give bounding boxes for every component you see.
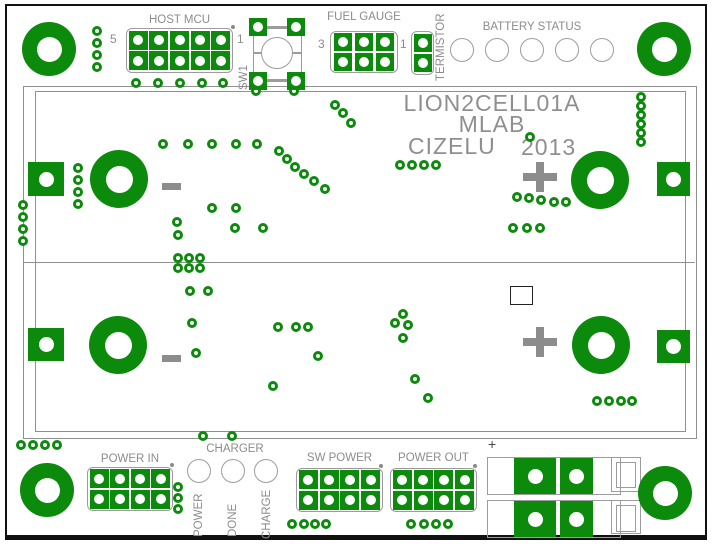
via bbox=[195, 263, 205, 273]
via bbox=[173, 482, 183, 492]
via bbox=[549, 197, 559, 207]
via bbox=[508, 223, 518, 233]
via bbox=[291, 322, 301, 332]
mounting-hole bbox=[638, 466, 692, 520]
sw1-pad-drill bbox=[291, 76, 301, 86]
header-pin-drill bbox=[156, 494, 166, 504]
battery-contact-drill bbox=[106, 166, 133, 193]
via bbox=[18, 236, 28, 246]
via bbox=[185, 286, 195, 296]
via bbox=[390, 318, 400, 328]
square-pad bbox=[514, 501, 556, 537]
header-pin-drill bbox=[216, 56, 226, 66]
via bbox=[18, 200, 28, 210]
header-pin-pad bbox=[414, 491, 433, 510]
via bbox=[604, 396, 614, 406]
via bbox=[407, 160, 417, 170]
mounting-hole bbox=[637, 22, 691, 76]
mounting-hole-drill bbox=[35, 478, 60, 503]
via bbox=[207, 203, 217, 213]
header-pin-pad bbox=[340, 470, 359, 489]
header-pin-pad bbox=[455, 491, 474, 510]
header-pin-pad bbox=[361, 491, 380, 510]
power-out-header bbox=[390, 468, 477, 512]
square-pad bbox=[560, 501, 593, 537]
via bbox=[431, 160, 441, 170]
via bbox=[92, 62, 102, 72]
via bbox=[230, 223, 240, 233]
header-pin-pad bbox=[170, 51, 189, 70]
battery-contact-drill bbox=[588, 332, 615, 359]
plus-mark bbox=[536, 162, 544, 192]
plus-mark bbox=[536, 327, 544, 357]
power-in-label: POWER IN bbox=[87, 453, 173, 465]
mounting-hole bbox=[20, 463, 74, 517]
header-pin-pad bbox=[334, 33, 352, 51]
header-pin-pad bbox=[129, 51, 148, 70]
power-in-pin1-dot bbox=[170, 463, 174, 467]
header-pin-drill bbox=[324, 495, 334, 505]
header-pin-pad bbox=[434, 491, 453, 510]
via bbox=[616, 396, 626, 406]
header-pin-drill bbox=[338, 57, 348, 67]
via bbox=[252, 139, 262, 149]
via bbox=[443, 519, 453, 529]
battery-contact-drill bbox=[587, 167, 614, 194]
header-pin-pad bbox=[211, 31, 230, 50]
header-pin-drill bbox=[366, 495, 376, 505]
via bbox=[40, 440, 50, 450]
header-pin-pad bbox=[361, 470, 380, 489]
square-pad-drill bbox=[39, 172, 54, 187]
charger-label: CHARGER bbox=[192, 443, 278, 455]
via bbox=[227, 431, 237, 441]
termistor-header bbox=[411, 31, 434, 75]
via bbox=[131, 78, 141, 88]
via bbox=[524, 193, 534, 203]
via bbox=[290, 162, 300, 172]
via bbox=[173, 230, 183, 240]
via bbox=[525, 132, 535, 142]
header-pin-pad bbox=[131, 490, 150, 509]
header-pin-pad bbox=[90, 490, 109, 509]
header-pin-drill bbox=[380, 57, 390, 67]
host-mcu-header bbox=[126, 28, 233, 73]
header-pin-drill bbox=[418, 58, 428, 68]
via bbox=[522, 223, 532, 233]
header-pin-drill bbox=[154, 56, 164, 66]
header-pin-drill bbox=[418, 495, 428, 505]
via bbox=[419, 519, 429, 529]
header-pin-drill bbox=[439, 495, 449, 505]
fuel-gauge-header bbox=[330, 31, 398, 73]
via bbox=[183, 139, 193, 149]
header-pin-pad bbox=[376, 53, 394, 71]
header-pin-drill bbox=[175, 56, 185, 66]
via bbox=[73, 199, 83, 209]
header-pin-pad bbox=[110, 490, 129, 509]
via bbox=[184, 263, 194, 273]
header-pin-drill bbox=[216, 35, 226, 45]
via bbox=[184, 253, 194, 263]
square-pad bbox=[514, 458, 556, 494]
via bbox=[303, 322, 313, 332]
battery-connector-plus-label: + bbox=[488, 436, 496, 452]
header-pin-pad bbox=[320, 491, 339, 510]
via bbox=[287, 519, 297, 529]
square-cutout bbox=[510, 286, 533, 305]
header-pin-pad bbox=[149, 51, 168, 70]
square-pad-drill bbox=[569, 469, 584, 484]
square-pad bbox=[657, 330, 690, 363]
fuel-gauge-pin3-label: 3 bbox=[318, 37, 325, 51]
fuel-gauge-pin1-label: 1 bbox=[400, 37, 407, 51]
sw1-pad bbox=[249, 72, 267, 90]
battery-status-label: BATTERY STATUS bbox=[482, 21, 582, 33]
sw1-pad-drill bbox=[253, 22, 263, 32]
charger-led-label: DONE bbox=[227, 485, 239, 537]
via bbox=[309, 176, 319, 186]
header-pin-pad bbox=[414, 34, 432, 52]
via bbox=[512, 192, 522, 202]
header-pin-drill bbox=[133, 35, 143, 45]
sw-power-label: SW POWER bbox=[296, 452, 383, 464]
sw1-pad-drill bbox=[253, 76, 263, 86]
power-in-header bbox=[87, 467, 173, 511]
header-pin-pad bbox=[414, 54, 432, 72]
via bbox=[173, 253, 183, 263]
via bbox=[273, 322, 283, 332]
via bbox=[198, 431, 208, 441]
header-pin-drill bbox=[345, 475, 355, 485]
via bbox=[172, 217, 182, 227]
via bbox=[423, 393, 433, 403]
header-pin-pad bbox=[393, 470, 412, 489]
via bbox=[197, 78, 207, 88]
header-pin-drill bbox=[338, 37, 348, 47]
square-pad bbox=[28, 162, 64, 196]
via bbox=[299, 519, 309, 529]
battery-status-led bbox=[485, 38, 509, 62]
header-pin-pad bbox=[434, 470, 453, 489]
terminal-block-row1-clamp-opening bbox=[616, 462, 636, 488]
sw1-pad bbox=[287, 72, 305, 90]
header-pin-drill bbox=[397, 475, 407, 485]
header-pin-drill bbox=[135, 474, 145, 484]
power-out-pin1-dot bbox=[473, 464, 477, 468]
minus-mark bbox=[162, 183, 181, 190]
host-mcu-pin5-label: 5 bbox=[110, 32, 117, 46]
header-pin-pad bbox=[299, 491, 318, 510]
square-pad-drill bbox=[569, 512, 584, 527]
via bbox=[191, 348, 201, 358]
via bbox=[173, 504, 183, 514]
via bbox=[187, 318, 197, 328]
via bbox=[321, 519, 331, 529]
via bbox=[175, 78, 185, 88]
header-pin-drill bbox=[175, 35, 185, 45]
header-pin-pad bbox=[376, 33, 394, 51]
header-pin-pad bbox=[211, 51, 230, 70]
header-pin-drill bbox=[115, 474, 125, 484]
via bbox=[207, 139, 217, 149]
square-pad-drill bbox=[666, 172, 681, 187]
battery-contact-ring bbox=[572, 316, 630, 374]
header-pin-drill bbox=[345, 495, 355, 505]
via bbox=[403, 320, 413, 330]
sw1-pad bbox=[249, 18, 267, 36]
via bbox=[398, 333, 408, 343]
header-pin-pad bbox=[110, 469, 129, 488]
minus-mark bbox=[162, 355, 181, 362]
via bbox=[592, 396, 602, 406]
mounting-hole-drill bbox=[653, 481, 678, 506]
header-pin-pad bbox=[320, 470, 339, 489]
header-pin-pad bbox=[191, 31, 210, 50]
via bbox=[153, 78, 163, 88]
header-pin-pad bbox=[299, 470, 318, 489]
via bbox=[338, 108, 348, 118]
sw1-pad-drill bbox=[291, 22, 301, 32]
square-pad-drill bbox=[528, 512, 543, 527]
header-pin-drill bbox=[460, 495, 470, 505]
via bbox=[231, 203, 241, 213]
via bbox=[18, 224, 28, 234]
via bbox=[395, 160, 405, 170]
battery-status-led bbox=[450, 38, 474, 62]
header-pin-drill bbox=[418, 38, 428, 48]
header-pin-drill bbox=[303, 475, 313, 485]
terminal-block-row2-clamp-opening bbox=[616, 505, 636, 532]
via bbox=[636, 137, 646, 147]
header-pin-pad bbox=[149, 31, 168, 50]
via bbox=[52, 440, 62, 450]
header-pin-drill bbox=[154, 35, 164, 45]
square-pad-drill bbox=[528, 469, 543, 484]
via bbox=[92, 50, 102, 60]
header-pin-drill bbox=[359, 37, 369, 47]
host-mcu-pin1-label: 1 bbox=[237, 32, 244, 46]
via bbox=[398, 309, 408, 319]
host-mcu-label: HOST MCU bbox=[126, 14, 233, 26]
via bbox=[92, 26, 102, 36]
host-mcu-pin1-dot bbox=[231, 25, 235, 29]
header-pin-drill bbox=[460, 475, 470, 485]
header-pin-pad bbox=[355, 33, 373, 51]
battery-status-led bbox=[590, 38, 614, 62]
header-pin-pad bbox=[129, 31, 148, 50]
header-pin-pad bbox=[131, 469, 150, 488]
battery-status-led bbox=[520, 38, 544, 62]
header-pin-drill bbox=[303, 495, 313, 505]
via bbox=[431, 519, 441, 529]
square-pad-drill bbox=[666, 339, 681, 354]
header-pin-drill bbox=[115, 494, 125, 504]
sw1-button-circle bbox=[261, 37, 293, 69]
square-pad bbox=[657, 162, 690, 196]
via bbox=[18, 212, 28, 222]
battery-contact-ring bbox=[90, 150, 148, 208]
via bbox=[73, 163, 83, 173]
via bbox=[73, 187, 83, 197]
header-pin-drill bbox=[195, 56, 205, 66]
via bbox=[173, 263, 183, 273]
header-pin-drill bbox=[94, 494, 104, 504]
via bbox=[28, 440, 38, 450]
via bbox=[231, 139, 241, 149]
pcb-board: LION2CELL01A MLAB CIZELU 2013 HOST MCU 5… bbox=[0, 0, 712, 548]
charger-led-charge bbox=[254, 459, 278, 483]
via bbox=[346, 118, 356, 128]
via bbox=[535, 223, 545, 233]
sw1-pad bbox=[287, 18, 305, 36]
battery-status-led bbox=[555, 38, 579, 62]
via bbox=[158, 139, 168, 149]
via bbox=[92, 38, 102, 48]
header-pin-drill bbox=[135, 494, 145, 504]
via bbox=[73, 175, 83, 185]
mounting-hole-drill bbox=[37, 37, 62, 62]
header-pin-drill bbox=[380, 37, 390, 47]
via bbox=[627, 396, 637, 406]
fuel-gauge-label: FUEL GAUGE bbox=[322, 11, 406, 23]
sw1-bottom-link bbox=[267, 80, 287, 82]
via bbox=[16, 440, 26, 450]
via bbox=[406, 519, 416, 529]
via bbox=[313, 351, 323, 361]
via bbox=[561, 197, 571, 207]
sw1-top-link bbox=[267, 26, 287, 28]
via bbox=[299, 169, 309, 179]
header-pin-pad bbox=[90, 469, 109, 488]
battery-contact-drill bbox=[105, 332, 132, 359]
header-pin-pad bbox=[191, 51, 210, 70]
board-author: CIZELU bbox=[408, 133, 496, 160]
battery-contact-ring bbox=[571, 151, 629, 209]
via bbox=[218, 78, 228, 88]
sw1-left-stub bbox=[253, 52, 262, 54]
header-pin-pad bbox=[340, 491, 359, 510]
via bbox=[203, 286, 213, 296]
charger-led-power bbox=[187, 459, 211, 483]
header-pin-drill bbox=[156, 474, 166, 484]
via bbox=[320, 184, 330, 194]
header-pin-drill bbox=[439, 475, 449, 485]
power-out-label: POWER OUT bbox=[390, 452, 477, 464]
header-pin-pad bbox=[170, 31, 189, 50]
via bbox=[410, 374, 420, 384]
charger-led-label: POWER bbox=[193, 485, 205, 537]
header-pin-drill bbox=[324, 475, 334, 485]
sw-power-pin1-dot bbox=[379, 464, 383, 468]
via bbox=[258, 223, 268, 233]
charger-led-done bbox=[221, 459, 245, 483]
square-pad bbox=[560, 458, 593, 494]
header-pin-pad bbox=[414, 470, 433, 489]
header-pin-pad bbox=[455, 470, 474, 489]
mounting-hole-drill bbox=[652, 37, 677, 62]
header-pin-pad bbox=[393, 491, 412, 510]
battery-contact-ring bbox=[89, 316, 147, 374]
sw-power-header bbox=[296, 468, 383, 512]
via bbox=[173, 493, 183, 503]
header-pin-drill bbox=[94, 474, 104, 484]
header-pin-drill bbox=[366, 475, 376, 485]
via bbox=[195, 253, 205, 263]
termistor-label: TERMISTOR bbox=[435, 7, 447, 81]
header-pin-drill bbox=[418, 475, 428, 485]
square-pad-drill bbox=[39, 337, 54, 352]
header-pin-drill bbox=[359, 57, 369, 67]
via bbox=[536, 195, 546, 205]
mounting-hole bbox=[22, 22, 76, 76]
header-pin-drill bbox=[133, 56, 143, 66]
sw1-right-stub bbox=[292, 52, 302, 54]
square-pad bbox=[28, 328, 64, 361]
via bbox=[310, 519, 320, 529]
header-pin-pad bbox=[151, 469, 170, 488]
header-pin-pad bbox=[355, 53, 373, 71]
via bbox=[268, 381, 278, 391]
battery-holder-divider bbox=[23, 262, 695, 263]
header-pin-pad bbox=[334, 53, 352, 71]
header-pin-pad bbox=[151, 490, 170, 509]
header-pin-drill bbox=[195, 35, 205, 45]
via bbox=[419, 160, 429, 170]
header-pin-drill bbox=[397, 495, 407, 505]
charger-led-label: CHARGE bbox=[261, 487, 273, 539]
